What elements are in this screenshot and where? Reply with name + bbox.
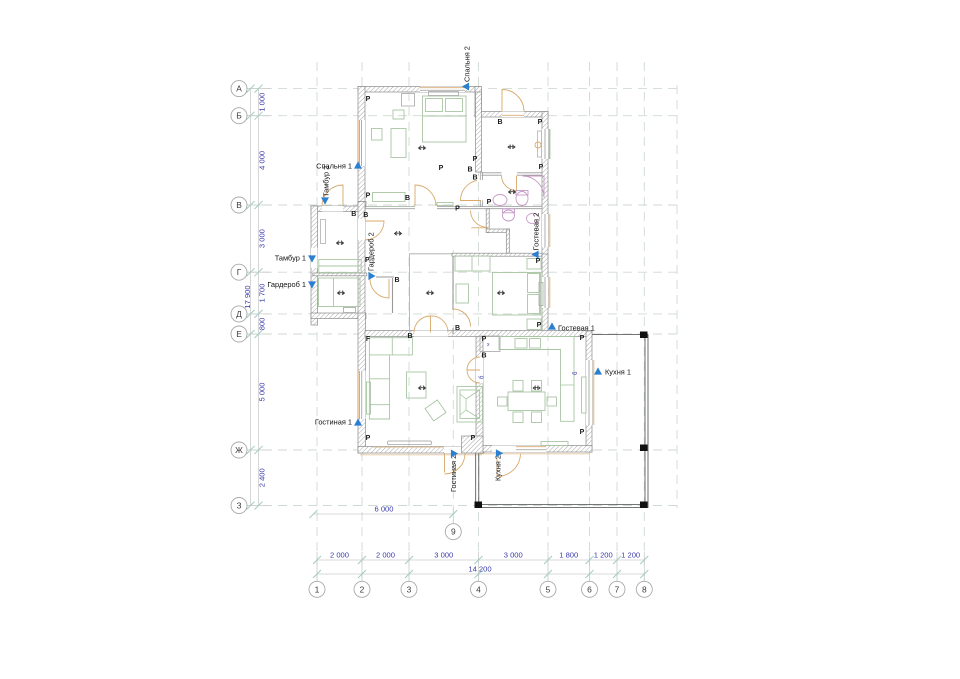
svg-text:Р: Р [366,435,371,442]
svg-text:б: б [573,371,579,375]
svg-text:Гардероб 1: Гардероб 1 [267,280,306,289]
svg-text:В: В [394,277,399,284]
svg-text:8: 8 [642,584,647,594]
svg-text:А: А [236,84,242,94]
svg-text:В: В [481,353,486,360]
svg-text:Р: Р [539,164,544,171]
svg-text:5 000: 5 000 [258,382,267,401]
svg-text:В: В [467,167,472,174]
svg-text:5: 5 [546,584,551,594]
svg-text:17 900: 17 900 [243,285,252,308]
svg-text:Спальня 2: Спальня 2 [463,46,472,82]
svg-text:Тамбур 2: Тамбур 2 [322,166,331,197]
svg-text:3: 3 [407,584,412,594]
svg-text:В: В [363,212,368,219]
svg-text:9: 9 [451,527,456,537]
svg-text:3 000: 3 000 [258,229,267,248]
svg-text:В: В [472,175,477,182]
svg-text:Р: Р [537,322,542,329]
svg-text:2: 2 [360,584,365,594]
svg-text:4: 4 [476,584,481,594]
svg-text:Ж: Ж [235,445,243,455]
svg-text:7: 7 [615,584,620,594]
svg-text:Г: Г [237,267,242,277]
svg-text:Р: Р [366,96,371,103]
svg-text:В: В [236,200,242,210]
svg-text:Р: Р [439,165,444,172]
svg-text:1 200: 1 200 [594,551,613,560]
svg-text:Р: Р [487,199,492,206]
svg-text:2 000: 2 000 [330,551,349,560]
svg-text:1 000: 1 000 [258,93,267,112]
svg-text:Р: Р [580,429,585,436]
svg-text:Кухня 1: Кухня 1 [605,368,631,377]
svg-text:2 400: 2 400 [258,468,267,487]
svg-text:1 200: 1 200 [621,551,640,560]
svg-text:Р: Р [536,258,541,265]
svg-text:Е: Е [236,329,242,339]
svg-text:Р: Р [366,193,371,200]
svg-text:F: F [366,336,371,343]
svg-text:Б: Б [236,111,242,121]
svg-text:3 000: 3 000 [434,551,453,560]
svg-text:1: 1 [315,584,320,594]
svg-text:1 700: 1 700 [258,284,267,303]
svg-text:Р: Р [580,335,585,342]
svg-text:2 000: 2 000 [376,551,395,560]
svg-text:Р: Р [538,119,543,126]
svg-text:1 800: 1 800 [559,551,578,560]
svg-text:6 000: 6 000 [374,505,393,514]
svg-text:3 000: 3 000 [504,551,523,560]
svg-text:Гостевая 1: Гостевая 1 [558,324,595,333]
svg-text:В: В [351,211,356,218]
svg-text:Р: Р [471,435,476,442]
svg-text:Гостевая 2: Гостевая 2 [532,213,541,251]
svg-text:Тамбур 1: Тамбур 1 [275,254,306,263]
svg-text:Кухня 2: Кухня 2 [494,455,503,481]
svg-text:Р: Р [455,206,460,213]
svg-text:Гостиная 2: Гостиная 2 [449,455,458,492]
svg-text:Р: Р [473,156,478,163]
svg-text:В: В [497,119,502,126]
svg-text:6: 6 [587,584,592,594]
svg-text:Р: Р [482,336,487,343]
svg-text:В: В [405,195,410,202]
svg-text:В: В [455,325,460,332]
svg-text:З: З [236,501,241,511]
svg-text:800: 800 [258,318,267,331]
svg-text:б: б [480,375,486,379]
svg-text:Гардероб 2: Гардероб 2 [367,232,376,271]
svg-text:14 200: 14 200 [468,565,491,574]
svg-text:В: В [407,333,412,340]
svg-text:Гостиная 1: Гостиная 1 [315,418,352,427]
svg-text:4 000: 4 000 [258,151,267,170]
svg-text:Д: Д [236,309,242,319]
